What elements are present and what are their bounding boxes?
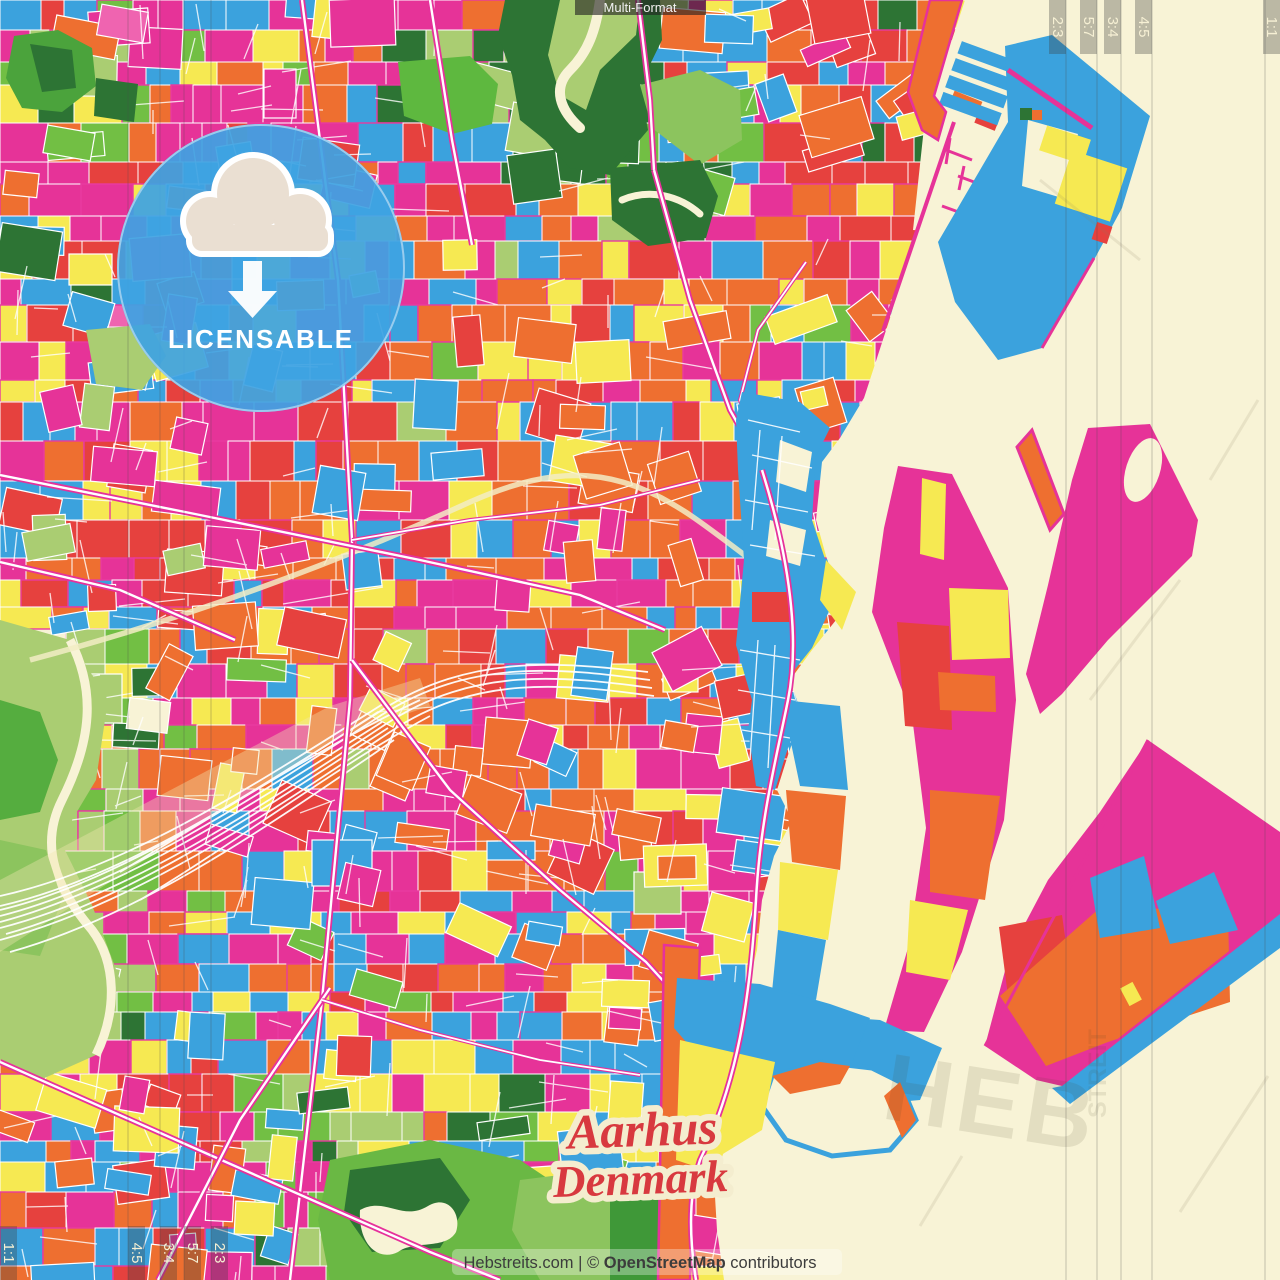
- svg-text:Hebstreits.com | © OpenStreetM: Hebstreits.com | © OpenStreetMap contrib…: [464, 1254, 817, 1272]
- svg-text:2:3: 2:3: [1049, 17, 1066, 38]
- svg-text:5:7: 5:7: [184, 1243, 201, 1264]
- svg-text:Multi-Format: Multi-Format: [604, 0, 677, 15]
- svg-text:4:5: 4:5: [128, 1243, 145, 1264]
- svg-text:Aarhus: Aarhus: [564, 1099, 719, 1159]
- svg-text:2:3: 2:3: [211, 1243, 228, 1264]
- svg-text:Denmark: Denmark: [551, 1151, 729, 1207]
- svg-text:5:7: 5:7: [1080, 17, 1097, 38]
- svg-text:1:1: 1:1: [1263, 17, 1280, 38]
- svg-text:LICENSABLE: LICENSABLE: [168, 324, 354, 354]
- svg-text:4:5: 4:5: [1135, 17, 1152, 38]
- svg-text:3:4: 3:4: [160, 1243, 177, 1264]
- svg-text:1:1: 1:1: [0, 1243, 17, 1264]
- svg-text:3:4: 3:4: [1104, 17, 1121, 38]
- svg-text:STREIT: STREIT: [1084, 1029, 1112, 1118]
